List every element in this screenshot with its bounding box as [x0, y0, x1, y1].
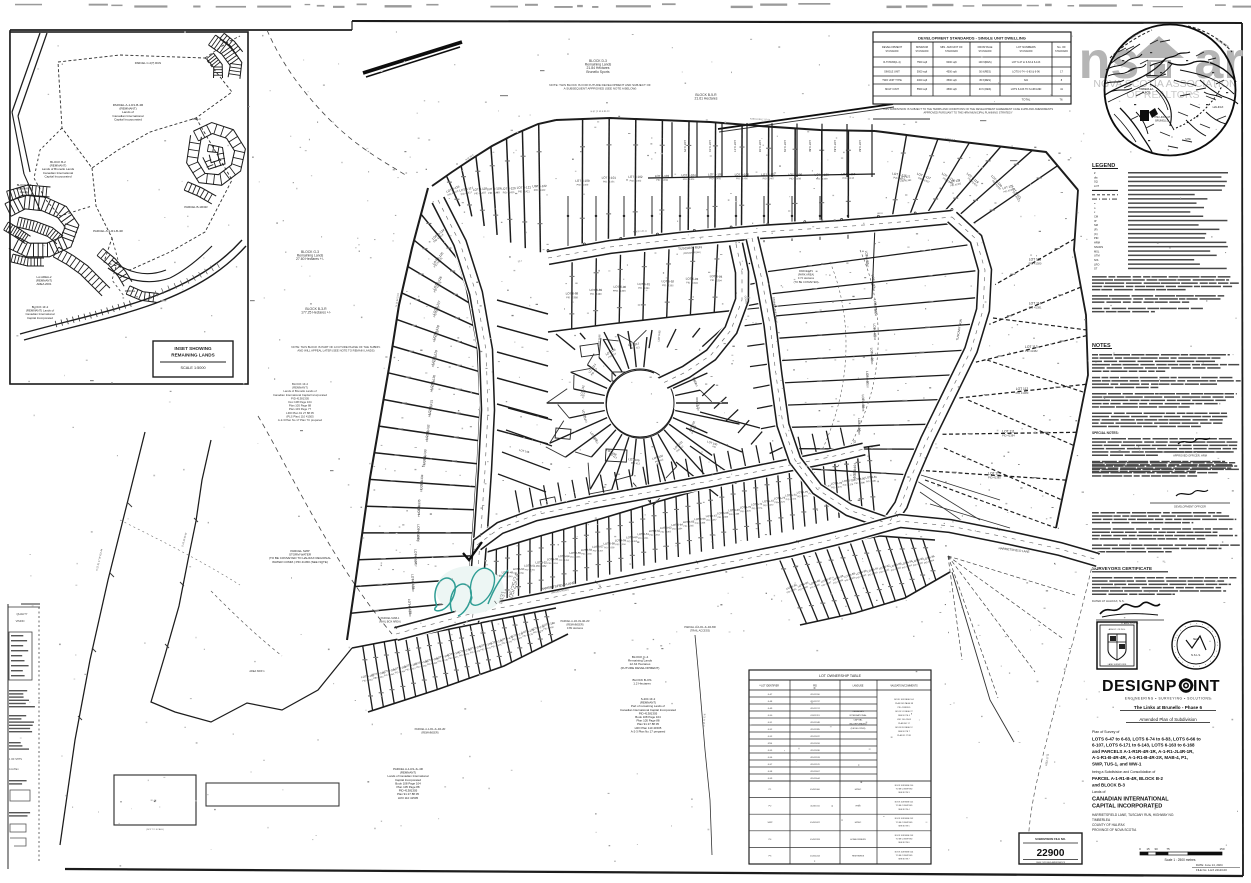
svg-text:LOT 6-104: LOT 6-104 [681, 173, 696, 177]
svg-text:LOT 6-81: LOT 6-81 [833, 140, 837, 152]
svg-text:VISION: VISION [16, 619, 25, 623]
svg-text:LOT 6-69: LOT 6-69 [728, 508, 740, 513]
svg-text:R-TOWNS(1-4): R-TOWNS(1-4) [883, 61, 900, 64]
svg-text:TIMBERLEA: TIMBERLEA [1092, 818, 1111, 822]
svg-text:PID 41402: PID 41402 [630, 180, 642, 183]
svg-text:VALIDATION/COMMENTS: VALIDATION/COMMENTS [890, 685, 918, 688]
svg-text:APPROVED OFFICER, HRM: APPROVED OFFICER, HRM [1173, 454, 1207, 458]
svg-text:LOT 6-90: LOT 6-90 [613, 285, 626, 289]
svg-text:PID 41389: PID 41389 [590, 293, 602, 296]
svg-text:3500 sqft: 3500 sqft [946, 79, 957, 82]
svg-text:0.74 Hectares: 0.74 Hectares [798, 276, 815, 280]
svg-text:0.89 Hectares: 0.89 Hectares [567, 626, 584, 630]
svg-text:•: • [1182, 661, 1183, 664]
svg-text:PARCEL MAB-1: PARCEL MAB-1 [381, 616, 400, 620]
svg-text:PID 41382: PID 41382 [1025, 349, 1038, 353]
svg-text:LOT 6-64: LOT 6-64 [671, 522, 683, 526]
svg-text:LOT 6-71: LOT 6-71 [751, 502, 763, 507]
svg-text:LOT NUMBERS: LOT NUMBERS [1016, 45, 1036, 49]
svg-text:Lands: Lands [20, 190, 28, 194]
svg-text:STANDARD: STANDARD [979, 50, 992, 53]
svg-text:LOT 6-73: LOT 6-73 [774, 496, 786, 501]
svg-text:PID 41404: PID 41404 [683, 178, 695, 181]
svg-text:PID 41351: PID 41351 [525, 569, 536, 571]
svg-text:(FUTURE DEVELOPMENT): (FUTURE DEVELOPMENT) [621, 666, 660, 670]
svg-text:PID 41391: PID 41391 [638, 287, 650, 290]
svg-text:A-2-3 Plan No 17 prepared: A-2-3 Plan No 17 prepared [631, 729, 666, 733]
svg-text:being a Subdivision and Consol: being a Subdivision and Consolidation of [1092, 770, 1155, 774]
svg-text:SURVEYORS CERTIFICATE: SURVEYORS CERTIFICATE [1092, 566, 1152, 571]
svg-text:LOT 115: LOT 115 [1029, 258, 1042, 262]
svg-text:6000 sqft: 6000 sqft [946, 61, 957, 64]
svg-text:TIMBERLEA: TIMBERLEA [1139, 87, 1154, 91]
svg-text:SEE NOTE 7: SEE NOTE 7 [898, 731, 911, 733]
svg-text:SEE NOTE 7: SEE NOTE 7 [898, 859, 909, 861]
svg-text:LAND SURVEYORS: LAND SURVEYORS [1108, 663, 1127, 666]
svg-text:HRM PARKS: HRM PARKS [852, 854, 865, 857]
svg-text:PID 41388: PID 41388 [566, 296, 578, 299]
svg-text:DEVELOPMENT: DEVELOPMENT [882, 45, 903, 49]
svg-text:PARCEL B-1R/4R: PARCEL B-1R/4R [184, 205, 207, 209]
svg-text:•: • [1202, 624, 1203, 627]
svg-text:88.02: 88.02 [877, 213, 883, 215]
svg-text:LRO: LRO [1094, 262, 1099, 266]
svg-text:(TO BE CONVEYED): (TO BE CONVEYED) [794, 280, 819, 284]
svg-text:50 ft(RES): 50 ft(RES) [979, 71, 991, 74]
svg-text:LOT 6-65: LOT 6-65 [683, 520, 695, 525]
svg-text:STANDARD: STANDARD [916, 50, 929, 53]
svg-text:No. OF: No. OF [1057, 45, 1066, 49]
svg-text:41511459: 41511459 [810, 743, 820, 745]
svg-text:CAPITAL: CAPITAL [854, 718, 864, 721]
svg-text:4000 sqft: 4000 sqft [917, 79, 928, 82]
svg-text:LOT 6-50: LOT 6-50 [513, 567, 525, 571]
svg-text:AREA 3: AREA 3 [191, 117, 201, 121]
svg-text:41451000: 41451000 [810, 789, 821, 791]
svg-text:PID 41349: PID 41349 [502, 576, 513, 578]
svg-text:LOT 6-59: LOT 6-59 [615, 538, 627, 542]
svg-text:UTM: UTM [1094, 254, 1100, 258]
svg-text:and BLOCK B-3: and BLOCK B-3 [1092, 783, 1125, 788]
svg-text:PID 41400: PID 41400 [577, 184, 589, 187]
svg-text:PID 41398: PID 41398 [861, 399, 865, 412]
svg-text:•: • [1190, 623, 1191, 626]
svg-text:SWP: SWP [768, 822, 774, 824]
svg-text:PID 41393: PID 41393 [686, 281, 698, 285]
svg-text:PID 41353: PID 41353 [547, 563, 558, 565]
svg-text:41451933: 41451933 [810, 839, 821, 841]
svg-text:PID 41362: PID 41362 [649, 534, 660, 536]
svg-text:LOT 6-88: LOT 6-88 [566, 291, 579, 295]
svg-text:40 ft (RES): 40 ft (RES) [979, 88, 992, 91]
svg-text:•: • [1175, 651, 1176, 654]
svg-text:(NOT TO SCALE): (NOT TO SCALE) [146, 828, 164, 831]
svg-text:REMAINING LANDS: REMAINING LANDS [171, 353, 214, 358]
svg-text:•: • [1193, 665, 1194, 668]
svg-text:•: • [1174, 646, 1175, 649]
svg-text:BOOK 108 PAGE 104: BOOK 108 PAGE 104 [895, 850, 913, 853]
svg-text:LOT 6-122: LOT 6-122 [532, 184, 547, 188]
svg-text:PID 41390: PID 41390 [614, 290, 626, 293]
svg-text:LOT 6-57: LOT 6-57 [592, 545, 604, 549]
svg-text:LANDUSE: LANDUSE [853, 685, 864, 688]
svg-text:PID 41435: PID 41435 [417, 504, 421, 517]
svg-text:LOT 6-92: LOT 6-92 [661, 279, 674, 283]
svg-text:21.61 Hectares: 21.61 Hectares [695, 97, 718, 101]
svg-text:SCALE 1:5000: SCALE 1:5000 [180, 366, 205, 370]
svg-text:LOT 6-56: LOT 6-56 [581, 548, 593, 552]
svg-text:MULTI UNIT: MULTI UNIT [885, 88, 899, 91]
svg-text:•: • [1217, 641, 1218, 644]
svg-text:SEE NOTE 4: SEE NOTE 4 [898, 809, 909, 811]
svg-text:41511274: 41511274 [810, 708, 820, 710]
svg-text:(DEVELOPER): (DEVELOPER) [851, 728, 866, 730]
svg-text:PID 41381: PID 41381 [1029, 306, 1042, 310]
svg-text:PID 41399: PID 41399 [857, 422, 861, 435]
svg-text:PLAN 105 PAGE 88: PLAN 105 PAGE 88 [895, 702, 914, 705]
svg-text:STANDARD: STANDARD [945, 50, 958, 53]
svg-text:LOT 6-61: LOT 6-61 [637, 532, 649, 536]
svg-text:LOT 6-101: LOT 6-101 [602, 176, 617, 180]
svg-text:LOT 6-80: LOT 6-80 [808, 140, 812, 152]
svg-text:PARCEL A-1R-4S-4R-2R: PARCEL A-1R-4S-4R-2R [561, 619, 590, 623]
svg-text:SPECIAL NOTES:: SPECIAL NOTES: [1092, 431, 1119, 435]
svg-text:LOT 6-58: LOT 6-58 [603, 541, 615, 545]
svg-text:Capital Incorporated: Capital Incorporated [27, 316, 53, 320]
svg-text:MSL: MSL [1094, 249, 1100, 253]
svg-text:BOOK 85 PAGE 12: BOOK 85 PAGE 12 [895, 726, 913, 729]
svg-text:41511570: 41511570 [810, 764, 820, 766]
svg-text:SITE: SITE [1185, 137, 1191, 141]
svg-text:PID 41356: PID 41356 [581, 554, 592, 556]
svg-text:HRWC: HRWC [855, 789, 862, 791]
svg-text:LOTS 6-74 - 6-83 & 6-96: LOTS 6-74 - 6-83 & 6-96 [1012, 71, 1040, 74]
svg-text:AND WILL APPEAL LATER (SEE NOT: AND WILL APPEAL LATER (SEE NOTE TO REMAI… [297, 349, 374, 353]
svg-text:PID 41394: PID 41394 [710, 279, 722, 283]
svg-text:5000 sqft: 5000 sqft [917, 71, 928, 74]
svg-text:Lands of: Lands of [1092, 790, 1105, 794]
svg-text:6-53: 6-53 [768, 736, 773, 738]
svg-text:CAPITAL INCORPORATED: CAPITAL INCORPORATED [1092, 804, 1162, 810]
svg-text:PID 41403: PID 41403 [656, 179, 668, 182]
svg-text:6-47: 6-47 [768, 694, 773, 696]
svg-text:LOT 6-105: LOT 6-105 [708, 172, 723, 176]
svg-text:PID 41352: PID 41352 [536, 566, 547, 568]
svg-text:A-1-R1-B-4R-4R, A-1-R1-B-4R-2R: A-1-R1-B-4R-4R, A-1-R1-B-4R-2R, MAB-4, P… [1092, 755, 1188, 760]
svg-text:PID 41401: PID 41401 [603, 180, 615, 183]
svg-text:41452244: 41452244 [810, 855, 821, 857]
svg-text:PARCEL: PARCEL [125, 289, 136, 293]
svg-text:LOT 6-100: LOT 6-100 [575, 179, 590, 183]
svg-text:LOT 6-106: LOT 6-106 [735, 172, 750, 176]
svg-text:41511607: 41511607 [810, 771, 820, 773]
svg-text:LOT 6-60: LOT 6-60 [626, 535, 638, 539]
svg-text:DATED AT HALIFAX, N.S.: DATED AT HALIFAX, N.S. [1092, 599, 1125, 603]
svg-text:Brunello Sports: Brunello Sports [586, 70, 609, 74]
svg-text:LOT 6-66: LOT 6-66 [694, 517, 706, 522]
svg-text:LOT 6-76: LOT 6-76 [708, 140, 712, 152]
svg-text:PID 41408: PID 41408 [789, 177, 801, 180]
svg-text:TO BE CONVEYED: TO BE CONVEYED [896, 838, 913, 840]
svg-text:6-52: 6-52 [768, 729, 773, 731]
svg-text:75: 75 [1166, 847, 1170, 851]
svg-text:PID 41358: PID 41358 [604, 547, 615, 549]
svg-text:APPROVED PURSUANT TO THE HRM M: APPROVED PURSUANT TO THE HRM MUNICIPAL P… [923, 111, 1012, 115]
svg-text:PID 41383: PID 41383 [1016, 391, 1029, 395]
svg-text:INT: INT [1193, 678, 1220, 695]
svg-text:DEVELOPMENT STANDARDS - SINGLE: DEVELOPMENT STANDARDS - SINGLE UNIT DWEL… [918, 36, 1026, 41]
svg-text:LOT 6-93: LOT 6-93 [686, 277, 699, 282]
svg-text:PROVINCE OF NOVA SCOTIA: PROVINCE OF NOVA SCOTIA [1092, 828, 1137, 832]
svg-text:N/S: N/S [1094, 258, 1099, 262]
svg-text:LOT 112: LOT 112 [1016, 387, 1029, 391]
svg-text:FRONTAGE: FRONTAGE [978, 45, 993, 49]
svg-text:PID 41392: PID 41392 [662, 284, 674, 287]
svg-text:LOT 6-91: LOT 6-91 [637, 282, 650, 286]
svg-text:SWP, TUS-1, and WW-1: SWP, TUS-1, and WW-1 [1092, 761, 1142, 766]
svg-text:SEAL: SEAL [1193, 638, 1200, 641]
svg-text:LOT IDENTIFIER: LOT IDENTIFIER [761, 686, 779, 688]
svg-text:and PARCELS A-1-R1R-4R-1R, A-1: and PARCELS A-1-R1R-4R-1R, A-1-R1-JL4R-1… [1092, 749, 1194, 754]
svg-text:DEVELOPMENT OFFICER: DEVELOPMENT OFFICER [1174, 505, 1206, 509]
svg-text:SINGLE UNIT: SINGLE UNIT [884, 71, 900, 74]
svg-text:BOOK 108 PAGE 101: BOOK 108 PAGE 101 [895, 801, 913, 804]
svg-text:PARCEL A-1-R1-JL-4R-2R: PARCEL A-1-R1-JL-4R-2R [415, 727, 446, 731]
svg-text:TO BE CONVEYED: TO BE CONVEYED [896, 822, 913, 824]
svg-text:HARRIETSFIELD LANE, TUSCANY RU: HARRIETSFIELD LANE, TUSCANY RUN, HIGHWAY… [1092, 813, 1174, 817]
svg-text:LOT OWNERSHIP TABLE: LOT OWNERSHIP TABLE [819, 674, 862, 678]
svg-text:LOT 6-103: LOT 6-103 [655, 174, 670, 178]
svg-text:PID 413: PID 413 [698, 401, 701, 410]
svg-text:QUALITY: QUALITY [16, 612, 27, 616]
svg-text:CASE 21455 AND AMENDMENTS: CASE 21455 AND AMENDMENTS [1036, 861, 1066, 864]
svg-text:BOOK 108 PAGE 100: BOOK 108 PAGE 100 [895, 784, 913, 787]
svg-text:LOT 6-109: LOT 6-109 [815, 173, 830, 177]
svg-text:WATER COMM.) PID 41450 (SEE N: WATER COMM.) PID 41450 (SEE NOTE) [272, 560, 328, 564]
svg-text:SEE NOTE 6: SEE NOTE 6 [898, 842, 909, 844]
svg-text:PID 41396: PID 41396 [869, 352, 874, 365]
svg-text:76: 76 [1059, 98, 1063, 102]
svg-text:6-48: 6-48 [768, 701, 773, 703]
svg-text:PID 41410: PID 41410 [843, 177, 855, 180]
svg-text:(TRAIL ACCESS): (TRAIL ACCESS) [690, 629, 710, 633]
svg-text:(P): (P) [1094, 228, 1098, 232]
svg-text:5500 sqft: 5500 sqft [917, 88, 928, 91]
svg-text:HRM: HRM [1094, 241, 1100, 245]
svg-text:N.S.L.S.: N.S.L.S. [1191, 653, 1201, 657]
svg-text:PID 41397: PID 41397 [865, 375, 870, 388]
svg-text:Amended Plan of Subdivision: Amended Plan of Subdivision [1139, 717, 1197, 722]
svg-text:MINIMUM: MINIMUM [916, 45, 929, 49]
svg-text:DATE: June 14, 2024: DATE: June 14, 2024 [1196, 863, 1223, 867]
svg-text:PID 41406: PID 41406 [736, 177, 748, 180]
svg-text:PID: PID [1094, 236, 1098, 240]
svg-text:1.2 Hectares: 1.2 Hectares [633, 682, 651, 686]
svg-text:CANADIAN: CANADIAN [852, 710, 864, 713]
svg-text:BOOK 108 PAGE 103: BOOK 108 PAGE 103 [895, 834, 913, 837]
svg-text:27.60 Hectares +/-: 27.60 Hectares +/- [296, 257, 324, 261]
svg-text:BOOK 91 PAGE 27: BOOK 91 PAGE 27 [895, 710, 913, 713]
svg-text:TO BE CONVEYED: TO BE CONVEYED [896, 855, 913, 857]
svg-text:PID 41354: PID 41354 [559, 560, 570, 562]
svg-text:STANDARD: STANDARD [1020, 50, 1033, 53]
svg-text:LOT 6-72: LOT 6-72 [762, 499, 774, 504]
svg-text:(REMAINDER): (REMAINDER) [566, 623, 583, 627]
svg-text:41451622: 41451622 [810, 822, 821, 824]
svg-text:150: 150 [1219, 847, 1224, 851]
svg-text:Plan of Survey of: Plan of Survey of [1092, 730, 1119, 734]
svg-text:6-107, LOTS 6-171 to 6-143, LO: 6-107, LOTS 6-171 to 6-143, LOTS 6-163 t… [1092, 743, 1195, 748]
svg-text:LRO 110 41505: LRO 110 41505 [398, 796, 419, 800]
svg-text:PID 41421: PID 41421 [518, 190, 530, 193]
svg-text:Capital Incorporated: Capital Incorporated [44, 174, 71, 178]
svg-text:PID 41381305: PID 41381305 [898, 707, 912, 709]
svg-text:PID 41384: PID 41384 [1002, 433, 1015, 437]
svg-text:TOTAL: TOTAL [1022, 98, 1031, 102]
svg-text:LOT 6-78: LOT 6-78 [758, 140, 762, 152]
svg-text:4500 sqft: 4500 sqft [946, 71, 957, 74]
svg-text:•: • [1215, 635, 1216, 638]
svg-text:HALIFAX: HALIFAX [1213, 105, 1224, 109]
svg-text:BOOK 108 PAGE 102: BOOK 108 PAGE 102 [895, 817, 913, 820]
svg-text:LOT 6-82: LOT 6-82 [858, 140, 862, 152]
svg-text:CM: CM [1094, 215, 1098, 219]
svg-text:6-55: 6-55 [768, 750, 773, 752]
svg-text:PID 41355: PID 41355 [570, 557, 581, 559]
svg-text:IP: IP [1094, 219, 1097, 223]
svg-text:6-50: 6-50 [768, 715, 773, 717]
svg-text:INTERNATIONAL: INTERNATIONAL [849, 714, 867, 717]
svg-text:Capital Incorporated: Capital Incorporated [114, 117, 142, 121]
svg-text:PID 41360: PID 41360 [627, 541, 638, 543]
svg-text:30: 30 [1154, 847, 1158, 851]
svg-text:LOT 114: LOT 114 [1029, 302, 1042, 306]
svg-text:dia: dia [1094, 175, 1098, 179]
svg-text:SEE NOTE 3: SEE NOTE 3 [898, 792, 909, 794]
svg-text:LOTS 6-47 to 6-63, LOTS 6-74 t: LOTS 6-47 to 6-63, LOTS 6-74 to 6-83, LO… [1092, 737, 1201, 742]
svg-text:SUBDIVISION FILE NO.: SUBDIVISION FILE NO. [1035, 837, 1066, 841]
svg-text:A-2-3 Plan No 17 Plan 7C prepa: A-2-3 Plan No 17 Plan 7C prepared [278, 418, 323, 422]
svg-text:•: • [1196, 623, 1197, 626]
svg-text:NSCRS: NSCRS [1094, 245, 1103, 249]
svg-text:(REMAINDER): (REMAINDER) [421, 731, 438, 735]
svg-text:MIN. AMOUNT OF: MIN. AMOUNT OF [940, 45, 963, 49]
svg-text:A SUBSEQUENT APPROVED (SEE NOT: A SUBSEQUENT APPROVED (SEE NOTE A BELOW) [564, 87, 637, 91]
svg-text:LOT 6-79: LOT 6-79 [783, 140, 787, 152]
svg-text:LOT 6-75: LOT 6-75 [683, 140, 687, 152]
svg-text:LOT 6-68: LOT 6-68 [717, 511, 729, 516]
svg-text:LOTS 6-163 TO 6-168 AND: LOTS 6-163 TO 6-168 AND [1011, 88, 1042, 91]
svg-text:BOOK 108 PAGE 104: BOOK 108 PAGE 104 [894, 698, 914, 701]
svg-text:PID 41420: PID 41420 [503, 191, 515, 194]
svg-text:PID 41363: PID 41363 [661, 531, 672, 533]
svg-text:PID 41359: PID 41359 [615, 544, 626, 546]
svg-text:SQ: SQ [1094, 180, 1098, 184]
svg-text:LOT 6-51: LOT 6-51 [524, 564, 536, 568]
svg-text:•: • [1178, 657, 1179, 660]
svg-text:LOT 6-47 to 6-63 & 6-143: LOT 6-47 to 6-63 & 6-143 [1012, 61, 1041, 64]
svg-text:LOT 6-89: LOT 6-89 [589, 288, 602, 292]
svg-text:CANADIAN INTERNATIONAL: CANADIAN INTERNATIONAL [1092, 797, 1169, 803]
svg-text:PARCEL A-A-R1-JL-4R-BR: PARCEL A-A-R1-JL-4R-BR [684, 625, 716, 629]
svg-text:PID 41405: PID 41405 [709, 177, 721, 180]
svg-text:PID 41407: PID 41407 [763, 177, 775, 180]
svg-text:PARCEL A-1-R1-B-4R, BLOCK B-2: PARCEL A-1-R1-B-4R, BLOCK B-2 [1092, 776, 1163, 781]
svg-text:(MAIL BOX AREA): (MAIL BOX AREA) [379, 620, 401, 624]
svg-text:ST: ST [1094, 267, 1098, 271]
svg-text:LOT 6-70: LOT 6-70 [740, 505, 752, 510]
svg-text:41451311: 41451311 [810, 806, 820, 808]
svg-text:ENGINEERING • SURVEYING •: ENGINEERING • SURVEYING • SOLUTIONS [1125, 697, 1211, 701]
svg-text:N 87 22 40 E 84.20: N 87 22 40 E 84.20 [591, 111, 611, 113]
svg-text:41511533: 41511533 [810, 757, 820, 759]
svg-text:STANDARD: STANDARD [886, 50, 899, 53]
svg-text:A A-Plan: A A-Plan [9, 768, 19, 771]
svg-text:HRM: HRM [856, 806, 861, 808]
svg-text:STANDARD: STANDARD [1055, 50, 1068, 53]
svg-text:100 ft(RES): 100 ft(RES) [978, 61, 991, 64]
svg-text:TWO UNIT TYPE: TWO UNIT TYPE [882, 79, 902, 82]
svg-text:LOT 6-107: LOT 6-107 [761, 173, 776, 177]
svg-text:INCORPORATED: INCORPORATED [849, 723, 867, 726]
svg-text:AREA 2001: AREA 2001 [37, 282, 52, 286]
svg-text:PLACE: PLACE [1142, 91, 1151, 95]
svg-text:41511422: 41511422 [810, 736, 820, 738]
svg-text:ASSOC. OF N.S.: ASSOC. OF N.S. [1109, 628, 1126, 631]
svg-text:LOT 6-55: LOT 6-55 [570, 551, 582, 555]
svg-text:41511385: 41511385 [810, 729, 820, 731]
svg-text:PARCEL C-4(?) RUN: PARCEL C-4(?) RUN [135, 61, 161, 65]
svg-text:TO BE CONVEYED: TO BE CONVEYED [896, 789, 913, 791]
svg-text:6-57: 6-57 [768, 764, 773, 766]
svg-text:BRUNELLO: BRUNELLO [1155, 120, 1169, 123]
svg-text:6-58: 6-58 [768, 771, 773, 773]
svg-text:45 ft(RES): 45 ft(RES) [979, 79, 991, 82]
svg-text:6-51: 6-51 [768, 722, 773, 724]
svg-text:(C): (C) [1094, 232, 1098, 236]
svg-text:THIS SUBDIVISION IS SUBJECT TO: THIS SUBDIVISION IS SUBJECT TO THE TERMS… [883, 107, 1053, 111]
svg-text:41511200: 41511200 [810, 694, 820, 696]
svg-text:PARCEL A-1-R1-B-4R: PARCEL A-1-R1-B-4R [93, 229, 124, 233]
svg-text:LOT: LOT [1094, 184, 1099, 188]
svg-text:PLAN 91 27 88: PLAN 91 27 88 [897, 734, 911, 737]
svg-text:AREA SWP-1: AREA SWP-1 [249, 670, 265, 673]
svg-text:41511311: 41511311 [810, 715, 820, 717]
svg-text:LOT 6-121: LOT 6-121 [517, 185, 532, 189]
svg-text:N/A: N/A [1024, 79, 1029, 82]
svg-text:TO BE CONVEYED: TO BE CONVEYED [896, 805, 913, 807]
svg-text:LOT 111: LOT 111 [1002, 429, 1014, 433]
svg-text:LOT 113: LOT 113 [1025, 345, 1038, 349]
svg-text:4500 sqft: 4500 sqft [946, 88, 957, 91]
svg-text:LOT 6-63: LOT 6-63 [660, 525, 672, 529]
svg-text:PID 41385: PID 41385 [988, 475, 1001, 479]
svg-text:SM: SM [1094, 223, 1098, 227]
svg-text:LOT 6-108: LOT 6-108 [788, 173, 803, 177]
svg-text:INSET SHOWING: INSET SHOWING [174, 346, 212, 351]
svg-text:PARCEL P1: PARCEL P1 [799, 269, 814, 273]
svg-text:SEE NOTE 4: SEE NOTE 4 [898, 715, 911, 717]
svg-text:HRWC: HRWC [855, 822, 862, 824]
svg-text:7500 sqft: 7500 sqft [917, 61, 928, 64]
svg-text:(PARK AREA): (PARK AREA) [798, 273, 814, 277]
svg-text:6-59: 6-59 [768, 778, 773, 780]
svg-text:41511496: 41511496 [810, 750, 820, 752]
svg-text:FILE No: 1-HX 24123-00: FILE No: 1-HX 24123-00 [1196, 868, 1227, 872]
svg-text:LOT 6-67: LOT 6-67 [706, 514, 718, 519]
svg-text:6-56: 6-56 [768, 757, 773, 759]
svg-text:LOT 6-54: LOT 6-54 [558, 554, 570, 558]
